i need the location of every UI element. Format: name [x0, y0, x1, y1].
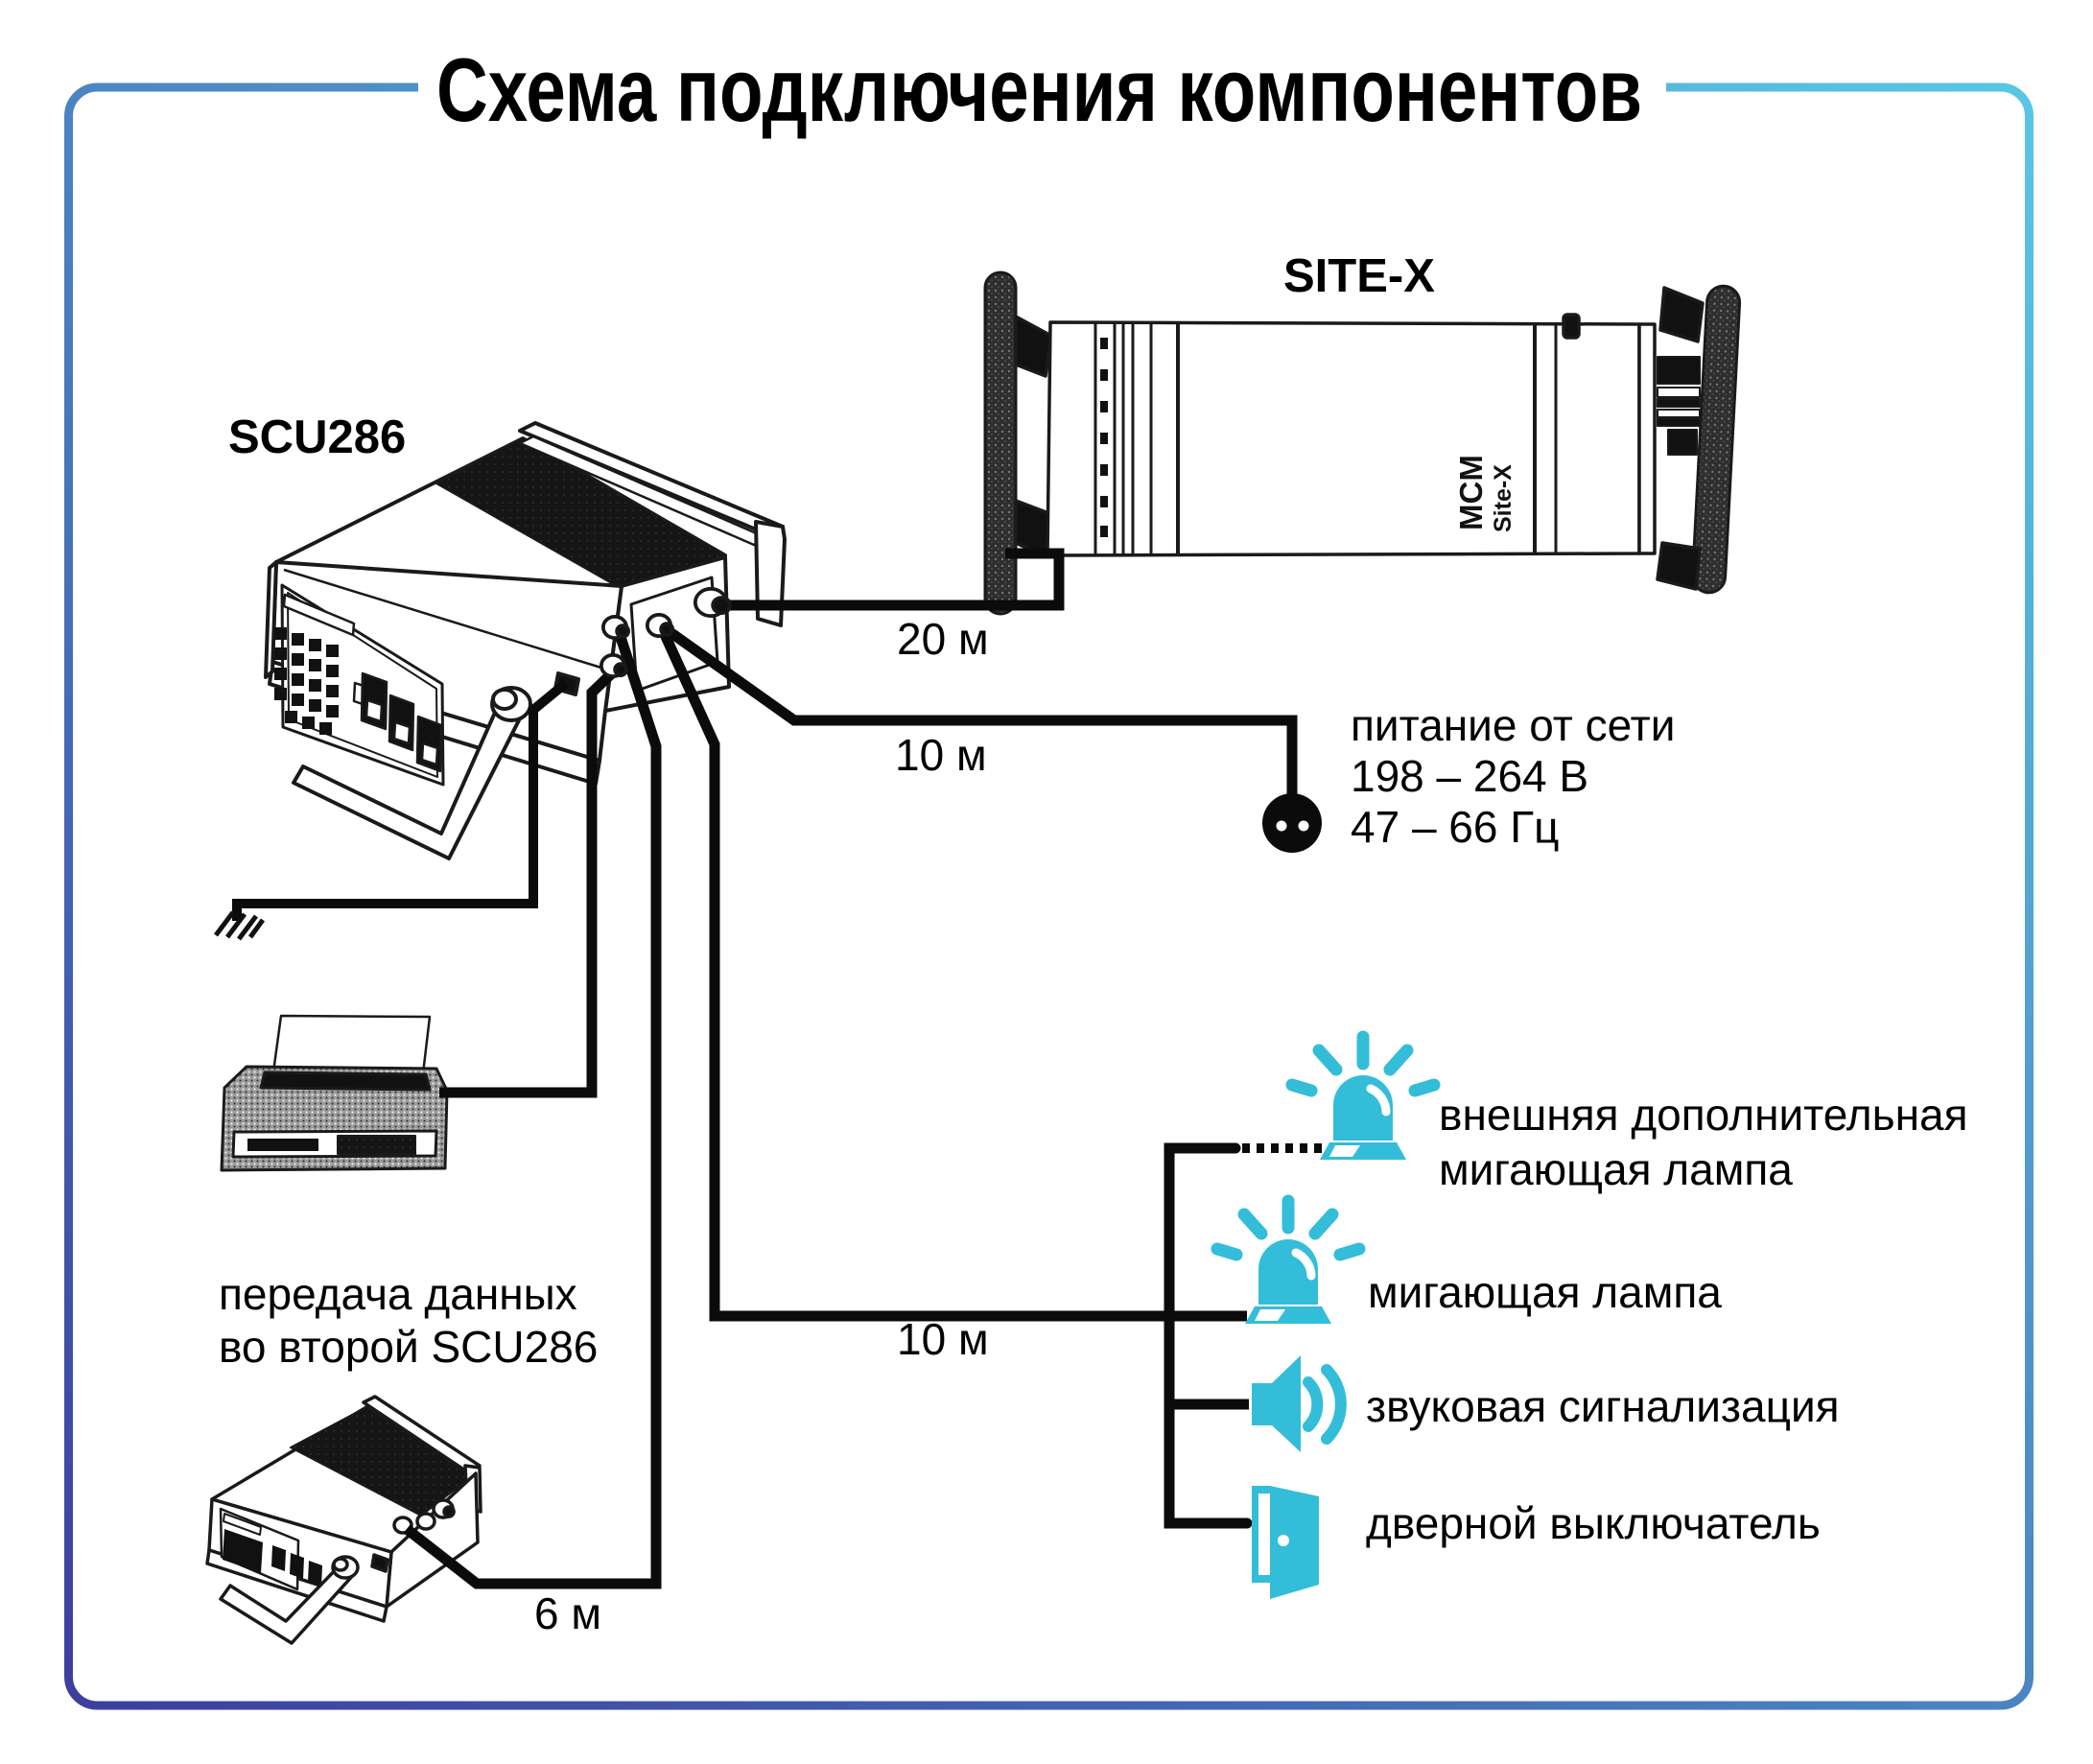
svg-text:198 – 264 В: 198 – 264 В	[1351, 751, 1588, 801]
svg-text:Site-X: Site-X	[1490, 464, 1517, 532]
svg-text:дверной выключатель: дверной выключатель	[1366, 1498, 1821, 1548]
svg-text:47 – 66 Гц: 47 – 66 Гц	[1351, 802, 1560, 852]
svg-text:SCU286: SCU286	[228, 412, 406, 463]
svg-text:во второй SCU286: во второй SCU286	[219, 1322, 598, 1372]
svg-text:питание от сети: питание от сети	[1351, 700, 1675, 750]
svg-text:10 м: 10 м	[895, 730, 987, 780]
svg-text:звуковая сигнализация: звуковая сигнализация	[1366, 1381, 1840, 1431]
svg-text:внешняя дополнительная: внешняя дополнительная	[1439, 1090, 1967, 1140]
svg-text:SITE-X: SITE-X	[1283, 250, 1435, 302]
svg-text:MCM: MCM	[1453, 455, 1489, 530]
svg-text:10 м: 10 м	[897, 1314, 989, 1364]
svg-text:передача данных: передача данных	[219, 1269, 577, 1319]
svg-text:мигающая лампа: мигающая лампа	[1439, 1144, 1793, 1194]
svg-text:20 м: 20 м	[897, 614, 989, 664]
svg-text:Схема подключения компонентов: Схема подключения компонентов	[436, 39, 1642, 140]
svg-text:6 м: 6 м	[534, 1588, 601, 1638]
svg-text:мигающая лампа: мигающая лампа	[1368, 1267, 1722, 1317]
